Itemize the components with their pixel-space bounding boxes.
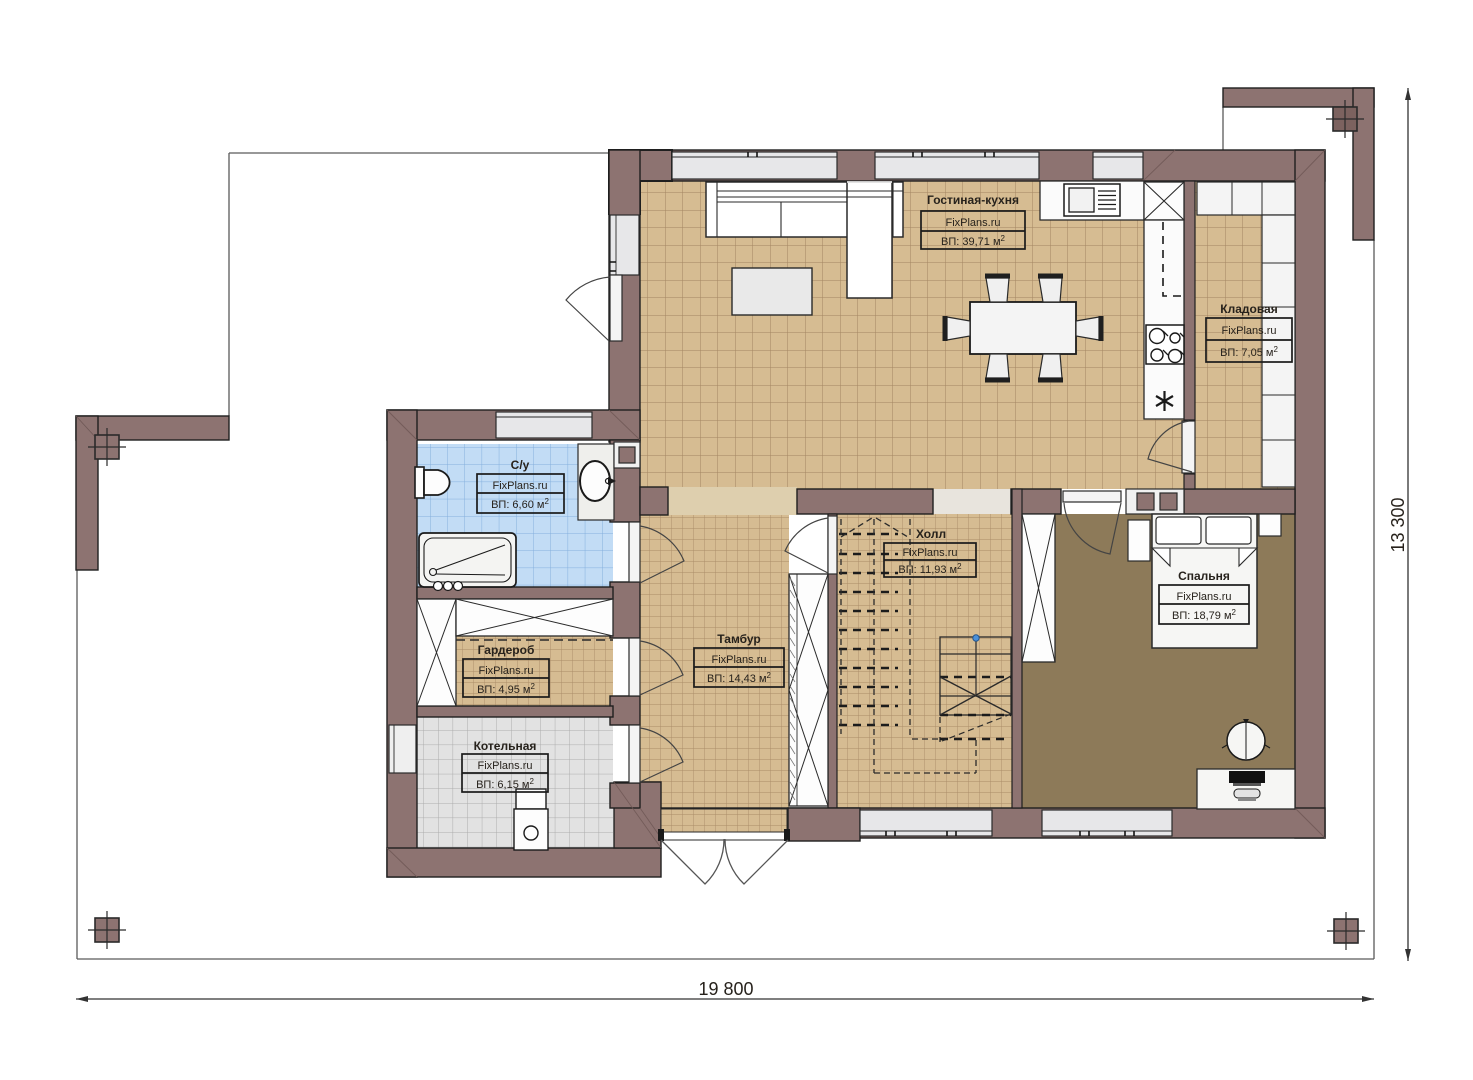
svg-text:С/у: С/у — [511, 458, 530, 472]
svg-text:FixPlans.ru: FixPlans.ru — [477, 760, 532, 772]
svg-text:FixPlans.ru: FixPlans.ru — [1221, 325, 1276, 337]
svg-text:ВП: 39,71 м2: ВП: 39,71 м2 — [941, 234, 1006, 248]
svg-text:ВП: 11,93 м2: ВП: 11,93 м2 — [898, 562, 962, 576]
svg-text:FixPlans.ru: FixPlans.ru — [492, 480, 547, 492]
svg-text:Холл: Холл — [916, 527, 946, 541]
svg-text:19 800: 19 800 — [698, 979, 753, 999]
svg-text:ВП: 6,60 м2: ВП: 6,60 м2 — [491, 497, 549, 511]
svg-text:ВП: 6,15 м2: ВП: 6,15 м2 — [476, 777, 534, 791]
svg-text:ВП: 14,43 м2: ВП: 14,43 м2 — [707, 671, 772, 685]
svg-text:FixPlans.ru: FixPlans.ru — [1176, 591, 1231, 603]
svg-text:FixPlans.ru: FixPlans.ru — [478, 665, 533, 677]
svg-text:ВП: 18,79 м2: ВП: 18,79 м2 — [1172, 608, 1237, 622]
svg-text:Гостиная-кухня: Гостиная-кухня — [927, 193, 1019, 207]
svg-text:ВП: 7,05 м2: ВП: 7,05 м2 — [1220, 345, 1278, 359]
svg-text:FixPlans.ru: FixPlans.ru — [711, 654, 766, 666]
svg-text:Котельная: Котельная — [474, 739, 537, 753]
svg-text:Тамбур: Тамбур — [717, 632, 761, 646]
svg-text:Кладовая: Кладовая — [1220, 302, 1277, 316]
svg-text:FixPlans.ru: FixPlans.ru — [902, 547, 957, 559]
svg-text:Гардероб: Гардероб — [478, 643, 535, 657]
svg-text:ВП: 4,95 м2: ВП: 4,95 м2 — [477, 682, 535, 696]
svg-text:13 300: 13 300 — [1388, 497, 1408, 552]
svg-text:Спальня: Спальня — [1178, 569, 1230, 583]
svg-text:FixPlans.ru: FixPlans.ru — [945, 217, 1000, 229]
